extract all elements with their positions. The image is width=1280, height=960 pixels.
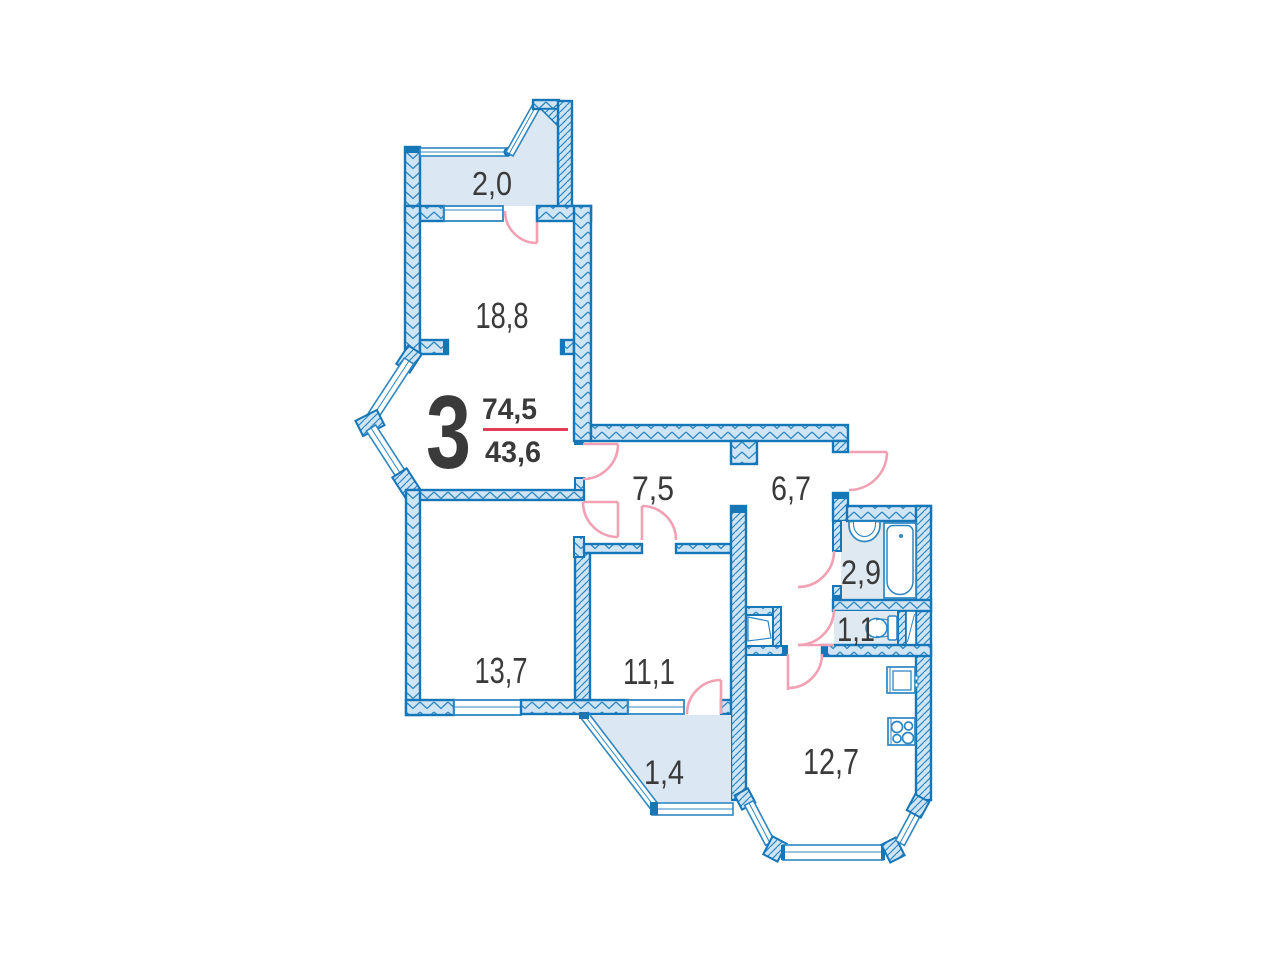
- svg-text:1,4: 1,4: [644, 754, 684, 792]
- svg-text:74,5: 74,5: [482, 393, 537, 426]
- svg-text:43,6: 43,6: [485, 436, 541, 469]
- svg-text:2,9: 2,9: [841, 554, 881, 592]
- svg-text:7,5: 7,5: [632, 470, 674, 508]
- svg-text:12,7: 12,7: [803, 741, 859, 782]
- svg-text:6,7: 6,7: [771, 470, 811, 508]
- svg-text:11,1: 11,1: [623, 651, 675, 692]
- svg-text:18,8: 18,8: [476, 295, 529, 336]
- svg-text:13,7: 13,7: [475, 650, 528, 691]
- svg-text:3: 3: [426, 375, 471, 491]
- svg-text:2,0: 2,0: [472, 165, 512, 202]
- svg-text:1,1: 1,1: [837, 611, 875, 649]
